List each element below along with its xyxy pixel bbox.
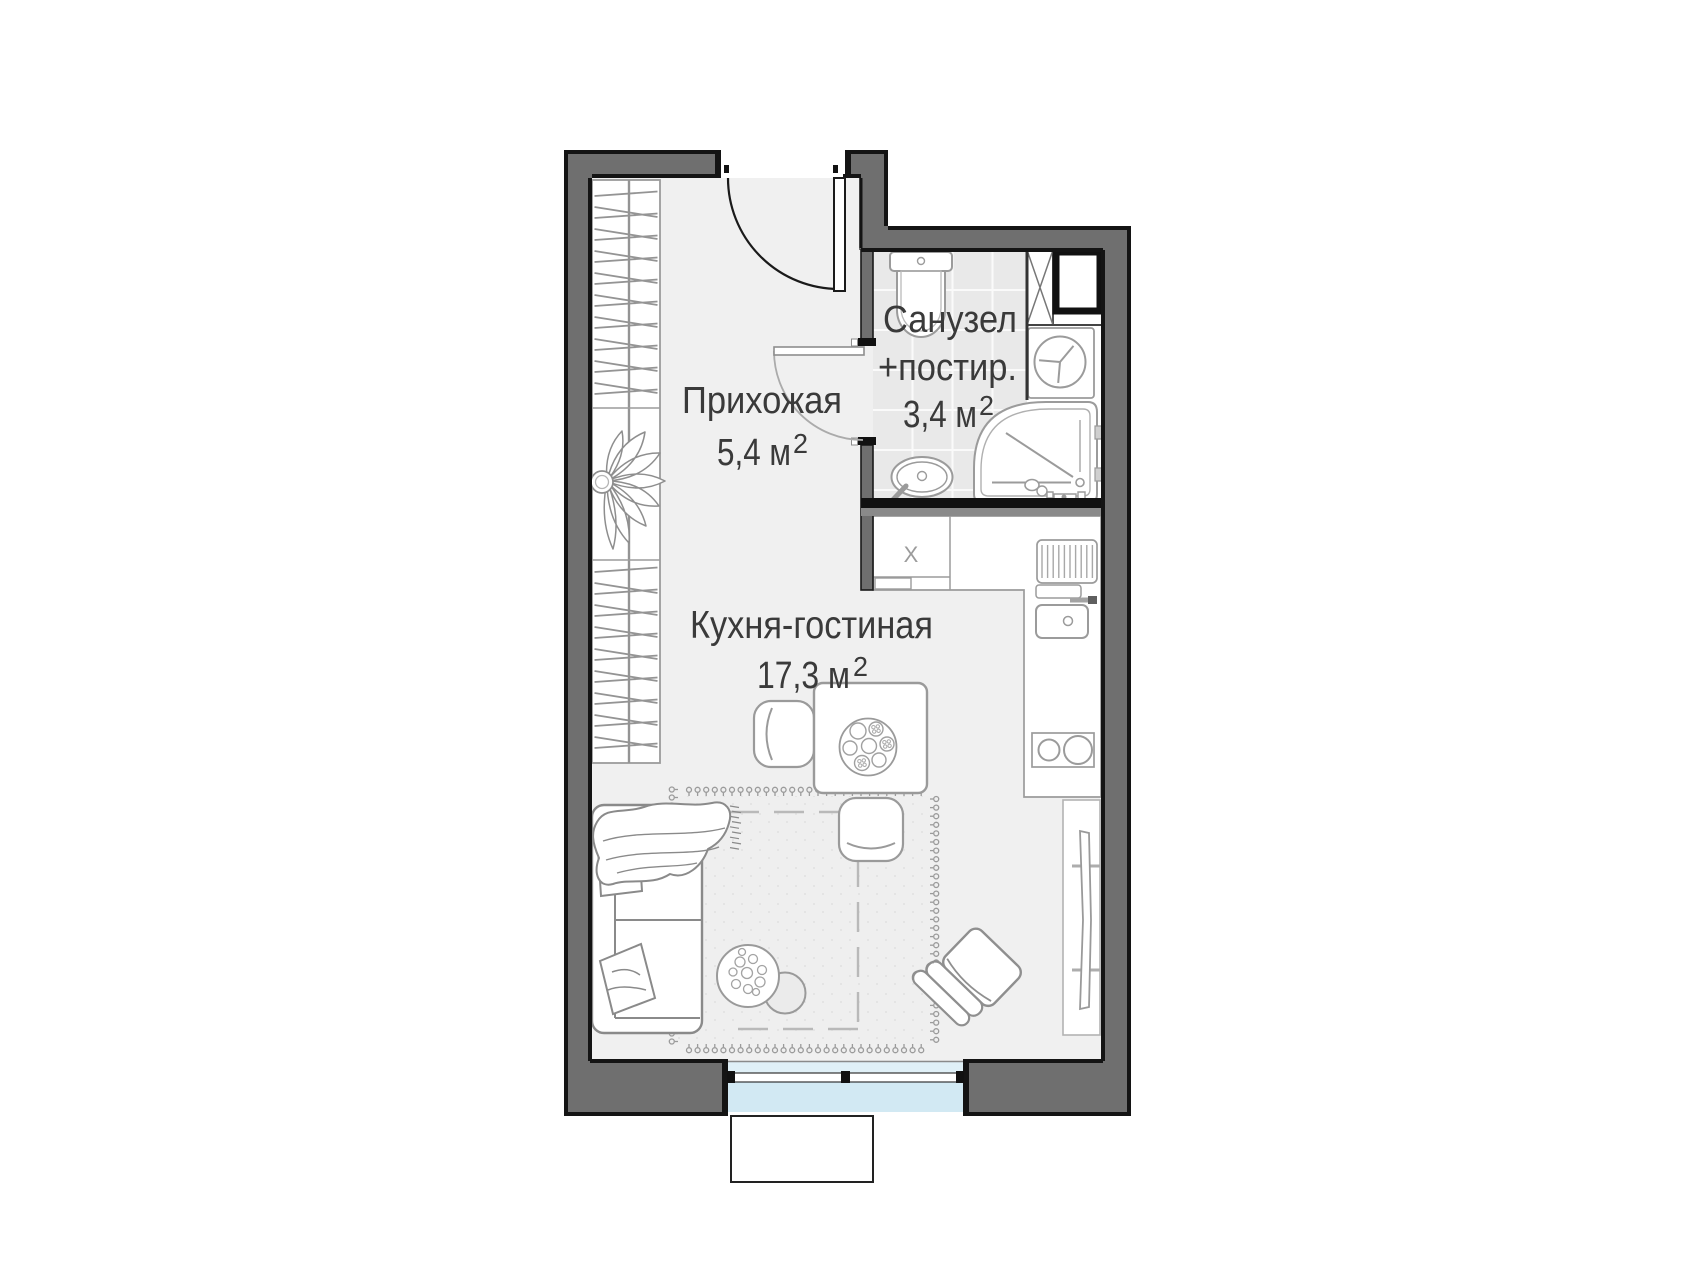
svg-text:17,3 м: 17,3 м — [757, 655, 850, 697]
svg-text:Санузел: Санузел — [883, 299, 1017, 341]
svg-text:2: 2 — [793, 428, 808, 459]
svg-text:3,4 м: 3,4 м — [903, 394, 977, 436]
svg-text:Кухня-гостиная: Кухня-гостиная — [690, 604, 933, 647]
svg-text:Прихожая: Прихожая — [682, 380, 842, 422]
svg-text:+постир.: +постир. — [878, 347, 1017, 389]
svg-text:2: 2 — [853, 651, 868, 682]
svg-text:X: X — [904, 542, 919, 567]
svg-text:2: 2 — [979, 390, 994, 421]
svg-text:5,4 м: 5,4 м — [717, 432, 791, 474]
